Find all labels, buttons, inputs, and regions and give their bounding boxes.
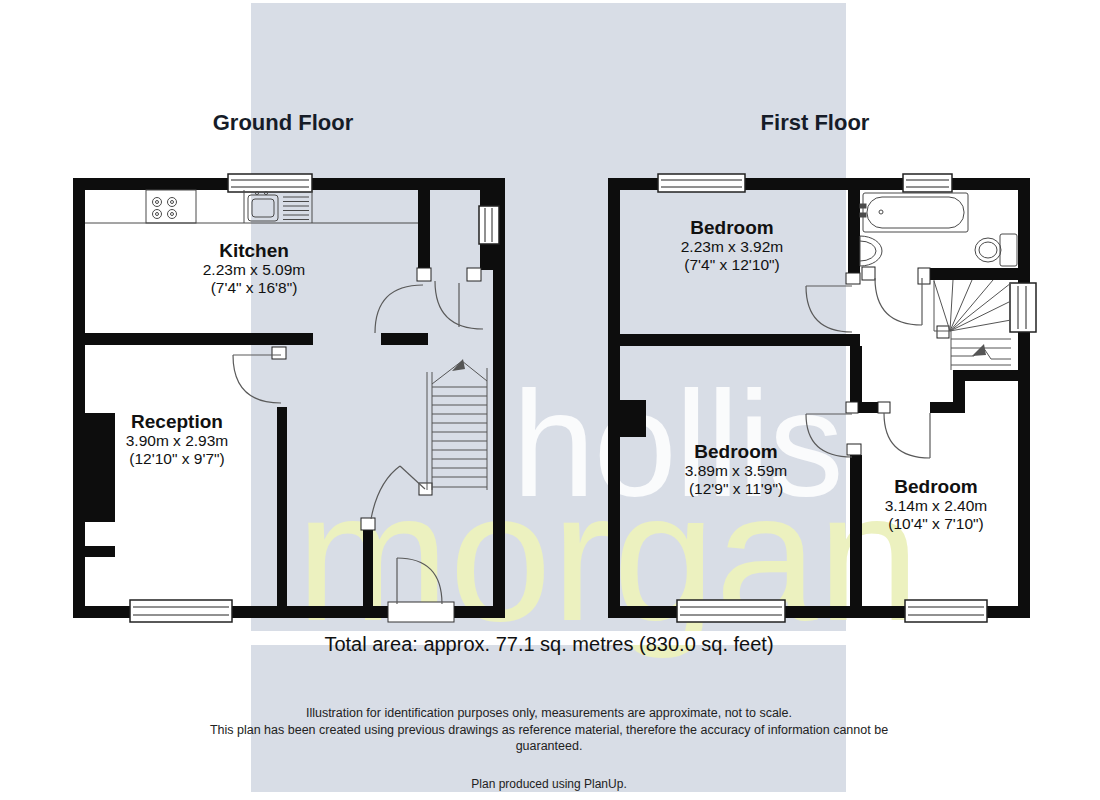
room-label-bedroom1: Bedroom 2.23m x 3.92m (7'4" x 12'10") (681, 218, 784, 274)
ground-floor-doors (233, 281, 483, 604)
window-kitchen (228, 174, 312, 192)
room-name: Bedroom (681, 218, 784, 238)
room-label-kitchen: Kitchen 2.23m x 5.09m (7'4" x 16'8") (203, 241, 306, 297)
staircase-first (934, 280, 1011, 370)
first-floor-title: First Floor (761, 110, 870, 136)
room-name: Bedroom (885, 477, 988, 497)
door-bathroom (875, 278, 922, 325)
staircase-ground (427, 359, 487, 490)
ground-floor-windows (130, 174, 499, 622)
ground-floor-jambs (272, 268, 481, 530)
total-area-text: Total area: approx. 77.1 sq. metres (830… (324, 633, 773, 656)
stair-direction-arrow (452, 359, 465, 371)
room-metric: 2.23m x 3.92m (681, 238, 784, 256)
door-reception (233, 355, 281, 403)
bathroom-fixtures (860, 193, 1017, 266)
front-door-threshold (388, 602, 454, 622)
toilet (975, 234, 1017, 266)
door-front-entrance (397, 558, 442, 604)
door-rear-hall (435, 281, 483, 329)
door-bedroom3 (884, 413, 930, 458)
stair-direction-arrow-first (972, 344, 986, 356)
window-bedroom2 (677, 600, 785, 622)
room-metric: 2.23m x 5.09m (203, 261, 306, 279)
window-reception (130, 600, 232, 622)
window-bedroom3 (905, 600, 987, 622)
room-imperial: (7'4" x 12'10") (681, 256, 784, 274)
window-side-ground (479, 206, 499, 244)
room-imperial: (12'10" x 9'7") (126, 450, 229, 468)
room-imperial: (12'9" x 11'9") (685, 480, 788, 498)
disclaimer-line-2: This plan has been created using previou… (210, 722, 888, 739)
room-metric: 3.90m x 2.93m (126, 432, 229, 450)
first-floor-plan (608, 174, 1036, 622)
kitchen-worktop (85, 190, 418, 223)
disclaimer-line-3: guaranteed. (210, 738, 888, 755)
produced-by-text: Plan produced using PlanUp. (471, 777, 626, 791)
room-imperial: (7'4" x 16'8") (203, 279, 306, 297)
window-stairwell-side (1010, 283, 1036, 332)
chimney-breast-ground (85, 413, 115, 522)
room-label-reception: Reception 3.90m x 2.93m (12'10" x 9'7") (126, 412, 229, 468)
door-understairs (371, 466, 425, 519)
room-imperial: (10'4" x 7'10") (885, 515, 988, 533)
disclaimer-text: Illustration for identification purposes… (210, 705, 888, 755)
room-label-bedroom3: Bedroom 3.14m x 2.40m (10'4" x 7'10") (885, 477, 988, 533)
door-kitchen (375, 285, 423, 333)
washbasin (860, 236, 882, 266)
door-bedroom2 (806, 414, 852, 457)
floorplan-canvas (0, 0, 1100, 800)
room-name: Bedroom (685, 442, 788, 462)
window-bedroom1 (658, 174, 745, 192)
ground-floor-title: Ground Floor (213, 110, 354, 136)
room-metric: 3.14m x 2.40m (885, 497, 988, 515)
disclaimer-line-1: Illustration for identification purposes… (210, 705, 888, 722)
room-label-bedroom2: Bedroom 3.89m x 3.59m (12'9" x 11'9") (685, 442, 788, 498)
room-name: Kitchen (203, 241, 306, 261)
chimney-breast-first (620, 400, 646, 437)
door-bedroom1 (806, 286, 852, 332)
drainer (283, 197, 309, 220)
first-floor-doors (806, 278, 930, 458)
first-floor-walls (608, 178, 1030, 618)
room-metric: 3.89m x 3.59m (685, 462, 788, 480)
floorplan-page: hollis morgan (0, 0, 1100, 800)
bathtub (860, 193, 968, 232)
room-name: Reception (126, 412, 229, 432)
kitchen-sink (248, 191, 278, 221)
window-bathroom (903, 174, 952, 192)
